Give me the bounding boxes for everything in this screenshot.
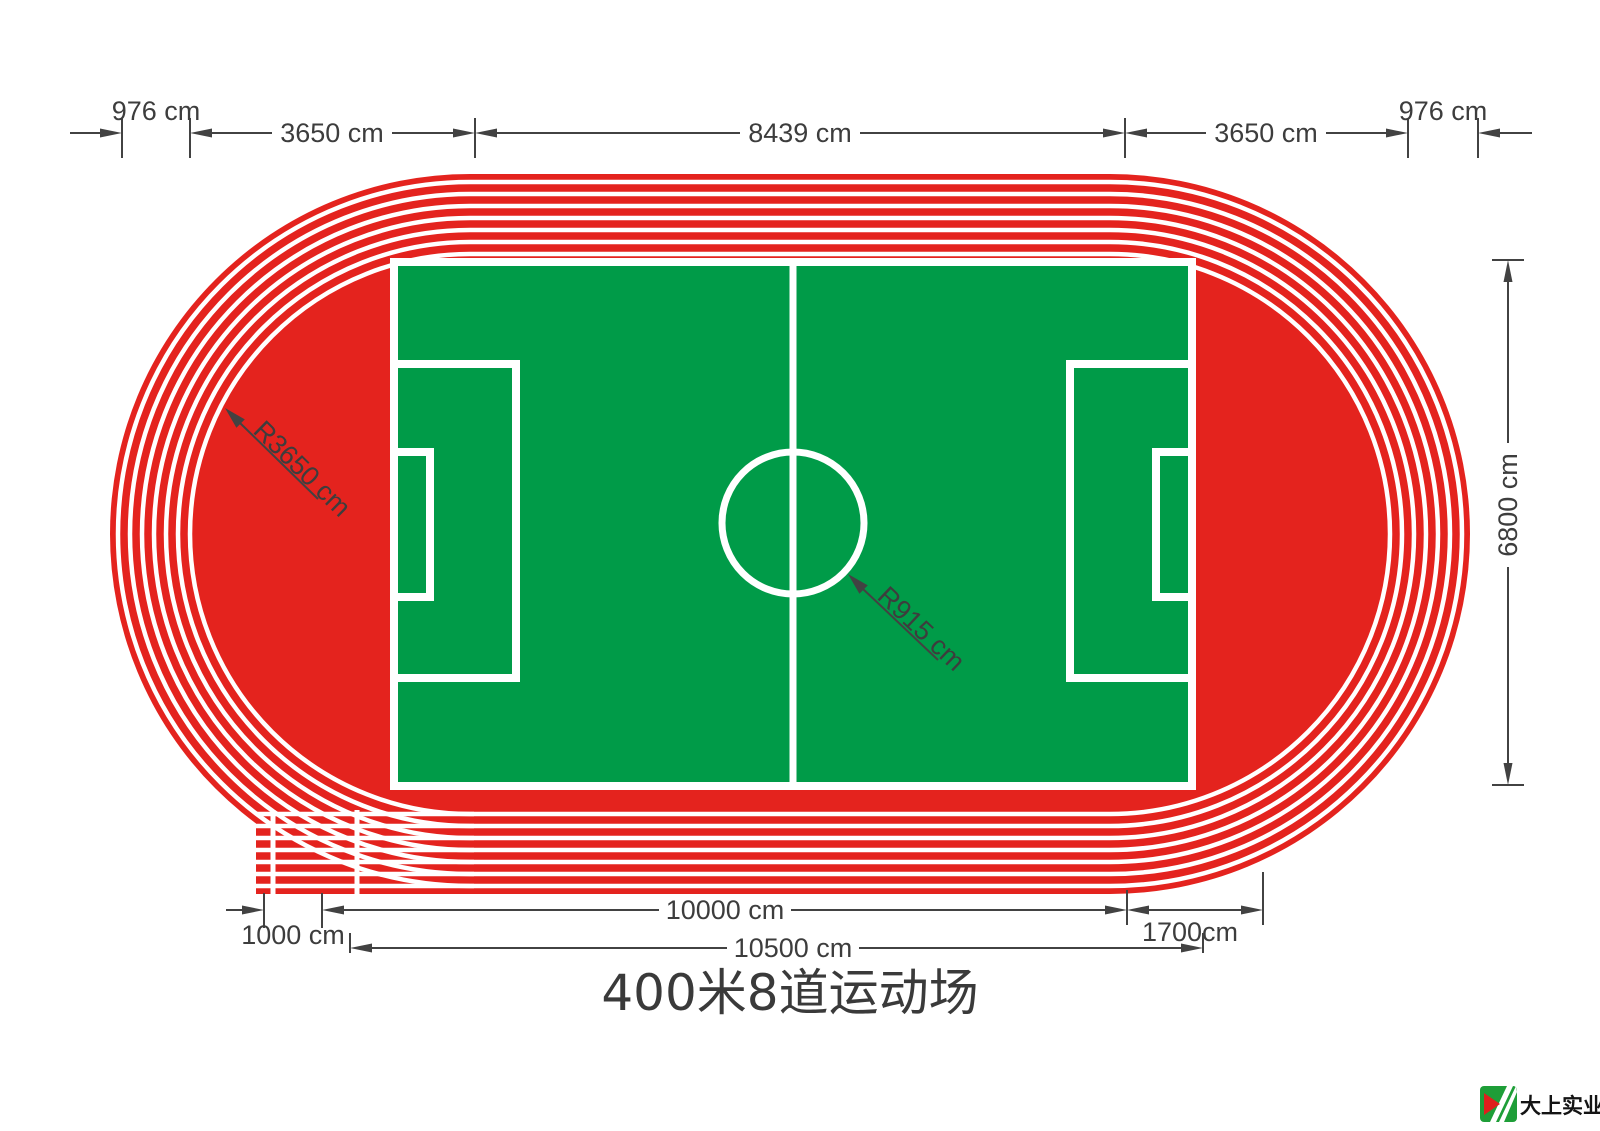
dim-track-width-left: 976 cm [112, 96, 201, 126]
dim-straight-total: 10000 cm [666, 895, 785, 925]
dim-overall: 10500 cm [734, 933, 853, 963]
company-logo: 大上实业 [1480, 1086, 1600, 1122]
dim-straight: 8439 cm [748, 118, 852, 148]
soccer-field [390, 258, 1196, 790]
dim-curve-offset: 1700cm [1142, 917, 1238, 947]
track-field-diagram: 976 cm 3650 cm 8439 cm 3650 cm 976 cm 68… [0, 0, 1600, 1131]
logo-company-name: 大上实业 [1520, 1094, 1600, 1118]
diagram-title: 400米8道运动场 [601, 964, 978, 1022]
dimension-right: 6800 cm [1492, 260, 1524, 785]
dim-track-width-right: 976 cm [1399, 96, 1488, 126]
dim-curve-right: 3650 cm [1214, 118, 1318, 148]
dim-field-height: 6800 cm [1493, 453, 1523, 557]
dim-curve-left: 3650 cm [280, 118, 384, 148]
dim-chute: 1000 cm [241, 920, 345, 950]
dimension-top: 976 cm 3650 cm 8439 cm 3650 cm 976 cm [70, 96, 1532, 158]
